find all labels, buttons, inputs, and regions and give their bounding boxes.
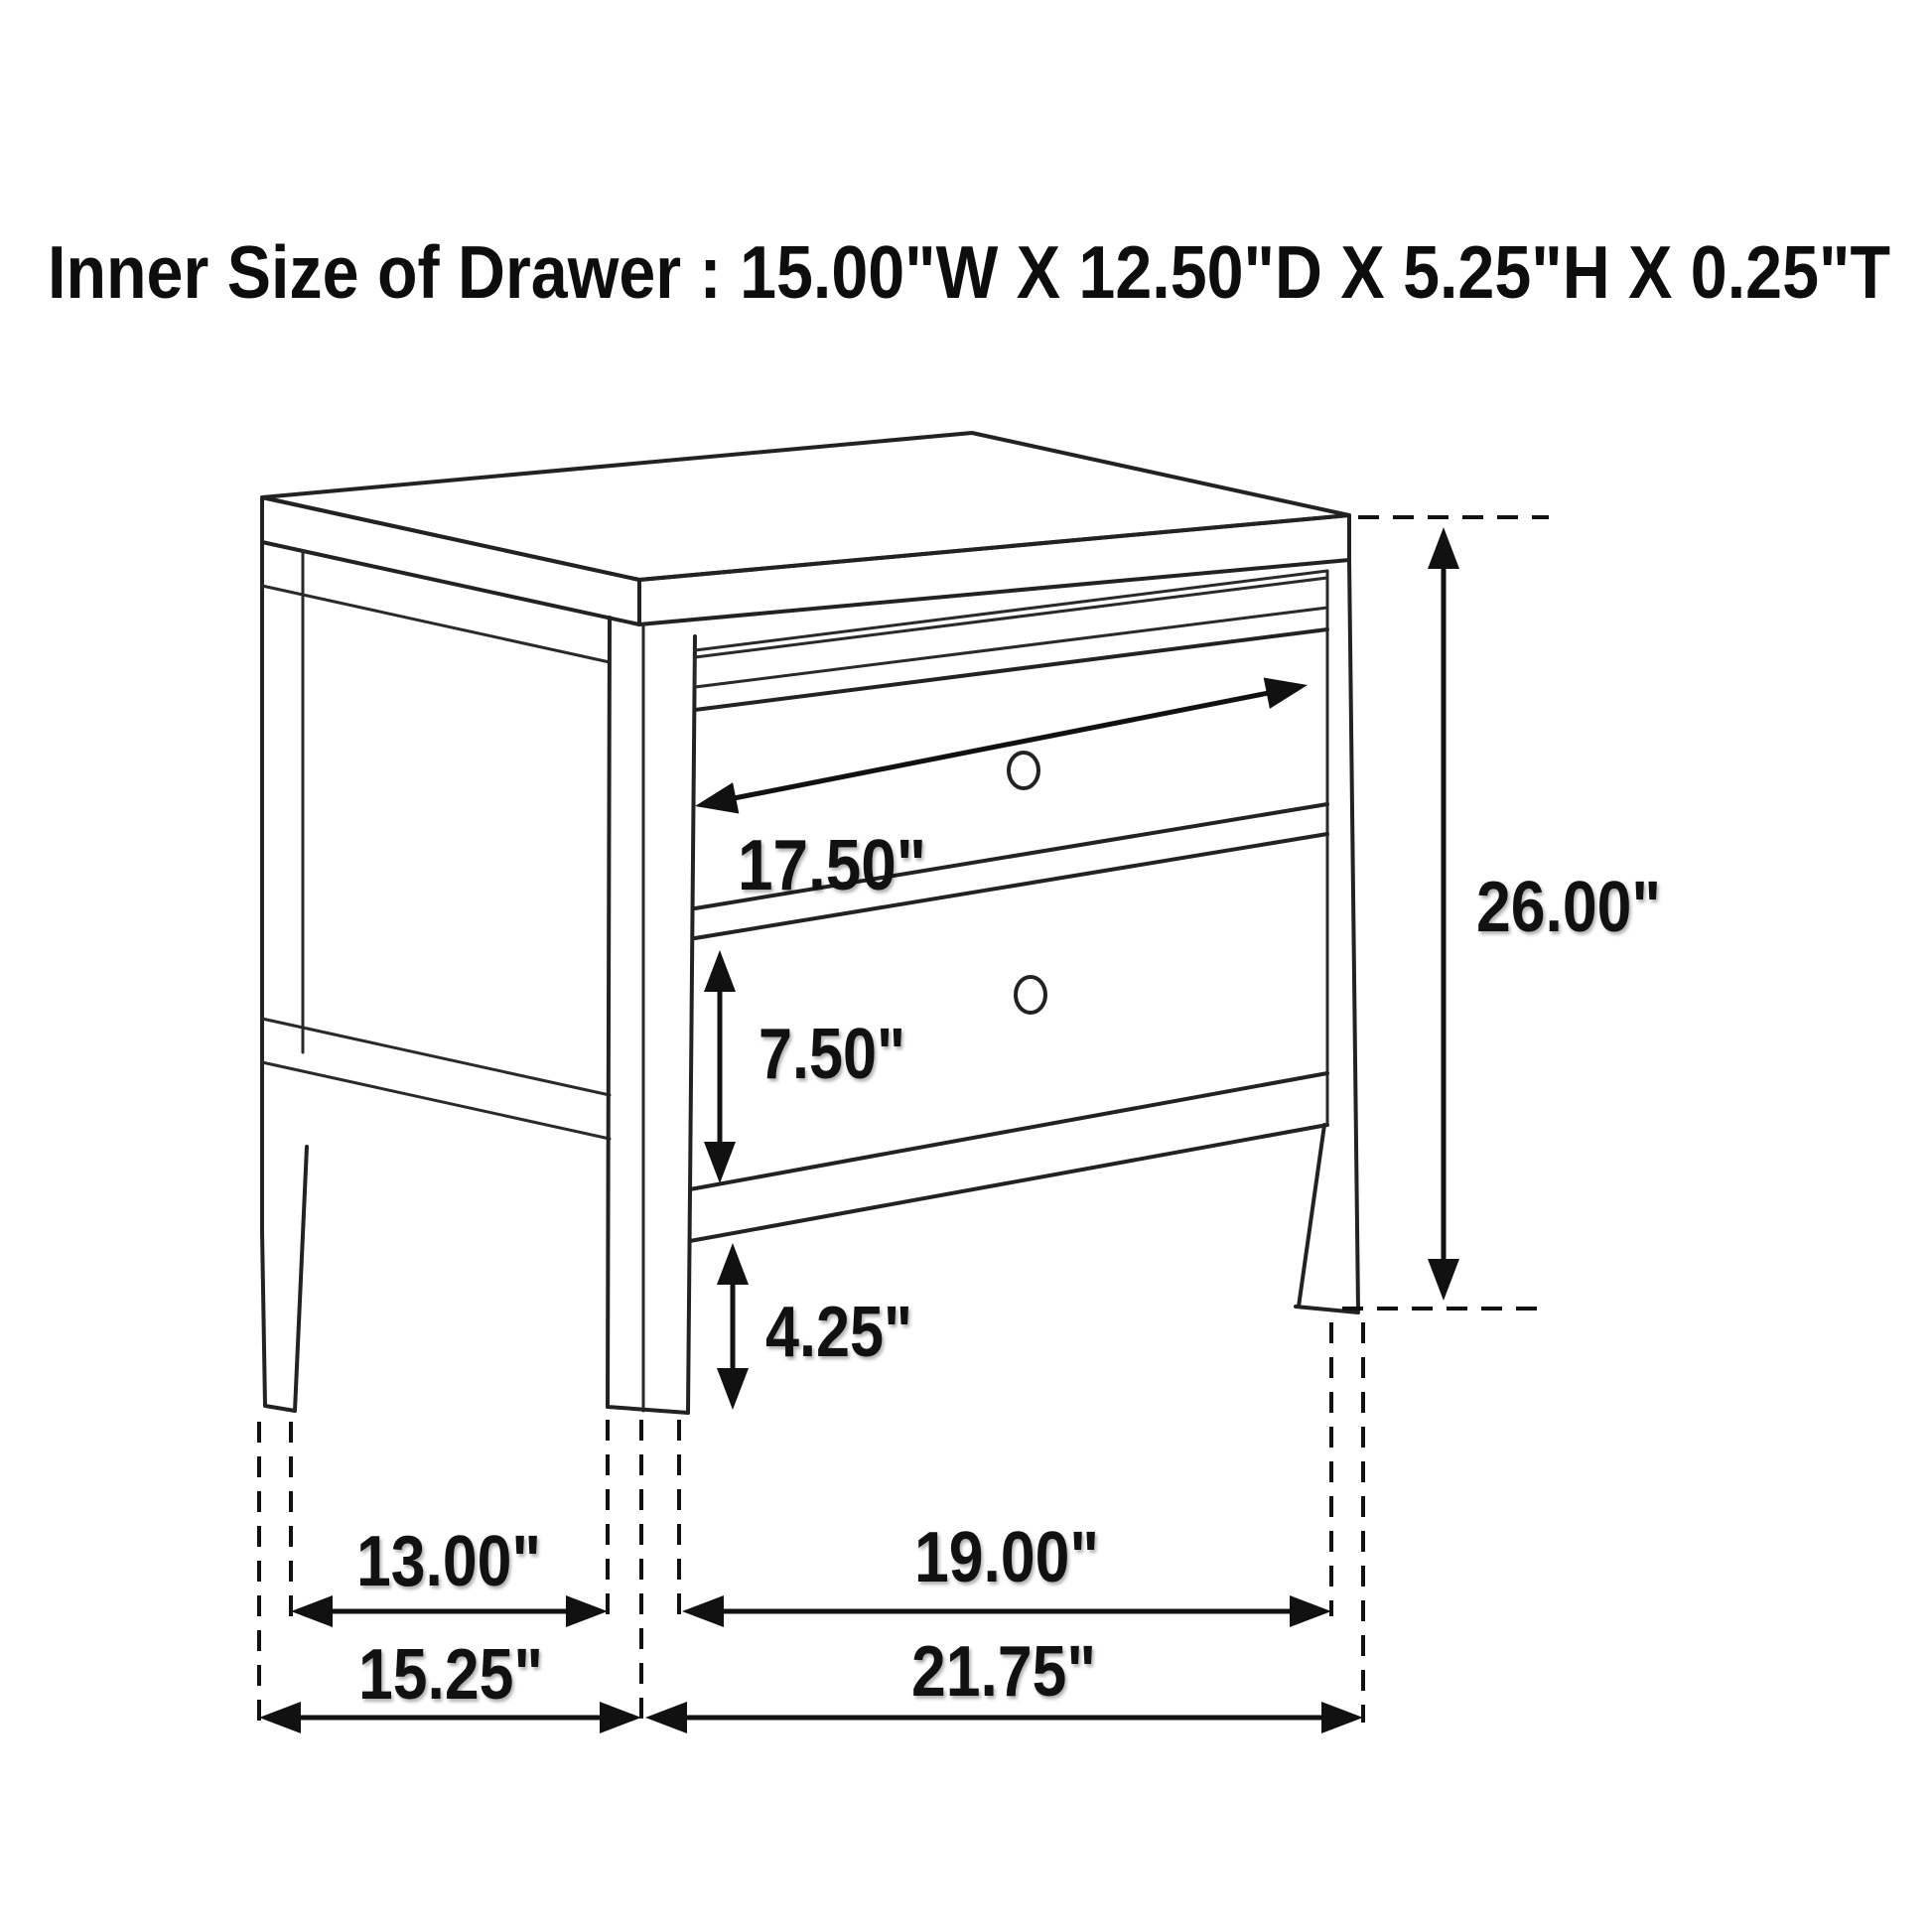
arrowhead-down bbox=[717, 1368, 749, 1410]
dim-arrow-drawer-opening-width bbox=[692, 669, 1311, 821]
side-bottom-rail-top-edge bbox=[262, 1019, 610, 1095]
side-top-rail-edge bbox=[262, 586, 610, 662]
arrowhead-right bbox=[600, 1702, 641, 1733]
nightstand-drawing bbox=[262, 433, 1358, 1413]
bottom-drawer-knob-icon bbox=[1016, 977, 1045, 1013]
arrowhead-left bbox=[291, 1595, 333, 1627]
arrowhead-up bbox=[717, 1243, 749, 1285]
dim-label-drawer-height: 7.50" bbox=[759, 1015, 905, 1094]
front-left-leg bbox=[608, 618, 695, 1413]
dim-arrow-overall-height bbox=[1428, 527, 1459, 1301]
tabletop-edge-front bbox=[639, 515, 1349, 624]
dim-line bbox=[709, 688, 1294, 803]
tabletop-surface bbox=[262, 433, 1349, 580]
dim-label-side-leg-spacing: 13.00" bbox=[356, 1522, 541, 1601]
dim-label-drawer-opening-width: 17.50" bbox=[738, 826, 926, 905]
arrowhead-right bbox=[566, 1595, 608, 1627]
front-left-leg-left-edge bbox=[608, 618, 610, 1407]
right-outer-edge bbox=[1349, 560, 1358, 1311]
arrowhead-down bbox=[1428, 1259, 1459, 1301]
arrowhead-up bbox=[704, 950, 736, 992]
dim-arrow-drawer-height bbox=[704, 950, 736, 1183]
dim-label-overall-height: 26.00" bbox=[1476, 868, 1661, 947]
tabletop-edge-left bbox=[262, 497, 639, 624]
arrowhead-left bbox=[645, 1702, 687, 1733]
right-leg-taper-edge bbox=[1299, 1125, 1324, 1307]
dim-label-front-leg-spacing: 19.00" bbox=[914, 1518, 1099, 1597]
dim-label-overall-width: 21.75" bbox=[911, 1632, 1096, 1712]
front-left-leg-bottom-edge bbox=[608, 1407, 688, 1413]
arrowhead-right bbox=[1264, 669, 1311, 709]
front-left-leg-right-edge bbox=[688, 636, 695, 1413]
bottom-rail-bottom-edge bbox=[690, 1125, 1327, 1241]
arrowhead-right bbox=[1321, 1702, 1363, 1733]
nightstand-dimension-diagram: Inner Size of Drawer : 15.00"W X 12.50"D… bbox=[0, 0, 1932, 1932]
arrowhead-left bbox=[692, 782, 739, 822]
dim-arrow-front-leg-spacing bbox=[682, 1595, 1331, 1627]
arrowhead-up bbox=[1428, 527, 1459, 569]
side-panel bbox=[262, 542, 610, 1411]
dim-arrow-floor-clearance bbox=[717, 1243, 749, 1410]
front-right-leg bbox=[1296, 560, 1358, 1312]
diagram-page: Inner Size of Drawer : 15.00"W X 12.50"D… bbox=[0, 0, 1932, 1932]
arrowhead-left bbox=[259, 1702, 301, 1733]
rear-left-leg bbox=[262, 1147, 307, 1411]
page-title: Inner Size of Drawer : 15.00"W X 12.50"D… bbox=[48, 230, 1890, 314]
arrowhead-right bbox=[1290, 1595, 1331, 1627]
dim-label-overall-depth: 15.25" bbox=[358, 1635, 543, 1715]
arrowhead-down bbox=[704, 1142, 736, 1183]
side-bottom-rail-bottom-edge bbox=[262, 1062, 610, 1139]
dim-label-floor-clearance: 4.25" bbox=[765, 1293, 912, 1372]
top-drawer-knob-icon bbox=[1009, 753, 1038, 788]
drawer-front-face bbox=[690, 571, 1327, 1241]
arrowhead-left bbox=[682, 1595, 724, 1627]
